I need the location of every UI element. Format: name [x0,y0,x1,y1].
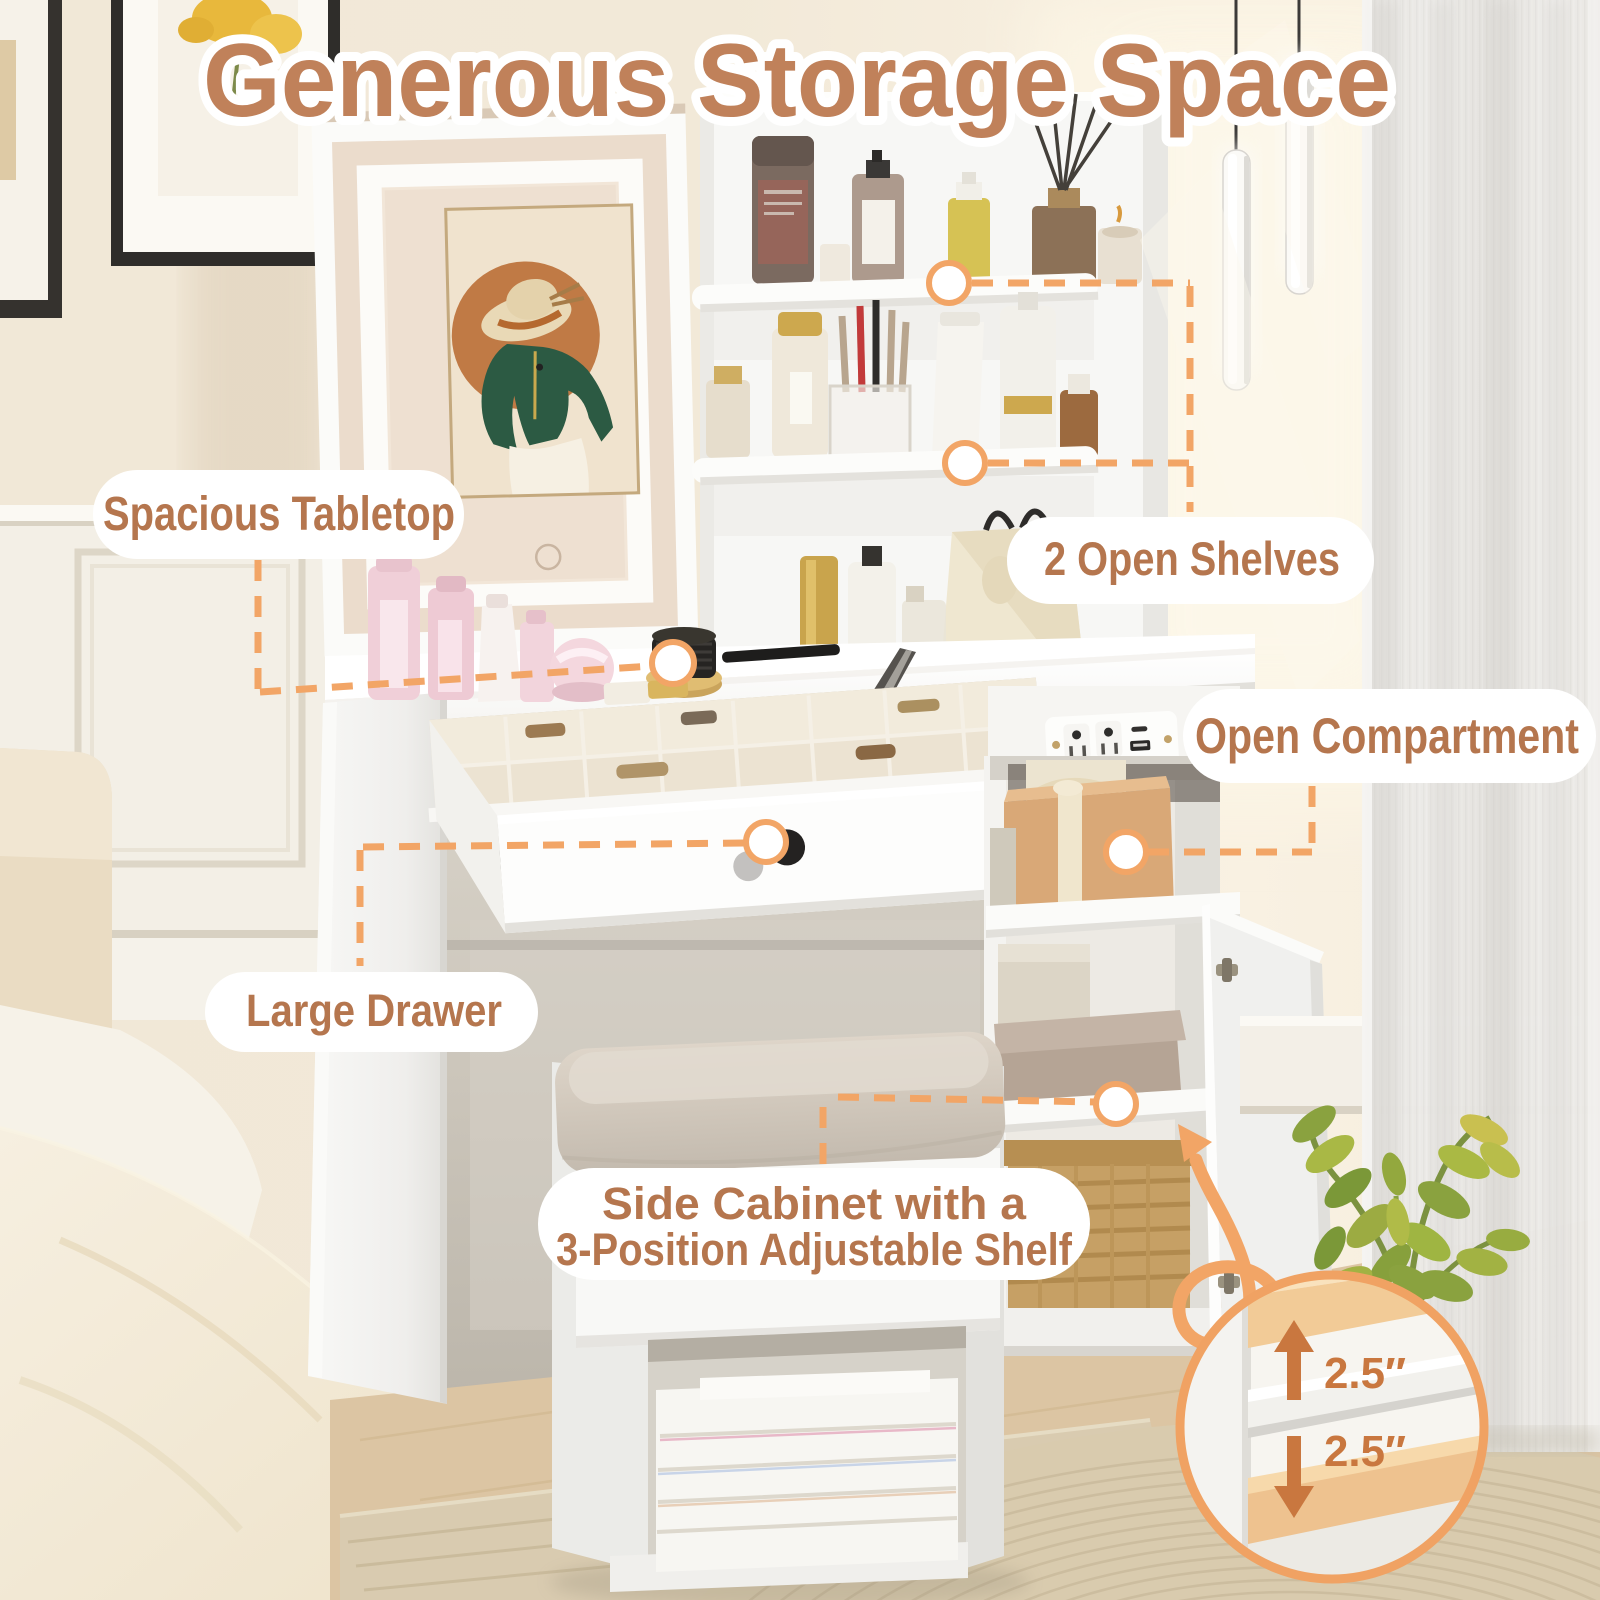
svg-text:2 Open Shelves: 2 Open Shelves [1044,532,1340,585]
svg-text:3-Position Adjustable Shelf: 3-Position Adjustable Shelf [556,1224,1073,1275]
svg-text:Large Drawer: Large Drawer [246,985,502,1036]
svg-text:2.5′′: 2.5′′ [1324,1427,1406,1476]
svg-text:Spacious Tabletop: Spacious Tabletop [103,488,455,541]
svg-text:2.5′′: 2.5′′ [1324,1349,1406,1398]
svg-text:Side Cabinet with a: Side Cabinet with a [602,1178,1027,1229]
svg-text:Open Compartment: Open Compartment [1195,708,1579,764]
svg-text:Generous Storage Space: Generous Storage Space [203,23,1391,139]
